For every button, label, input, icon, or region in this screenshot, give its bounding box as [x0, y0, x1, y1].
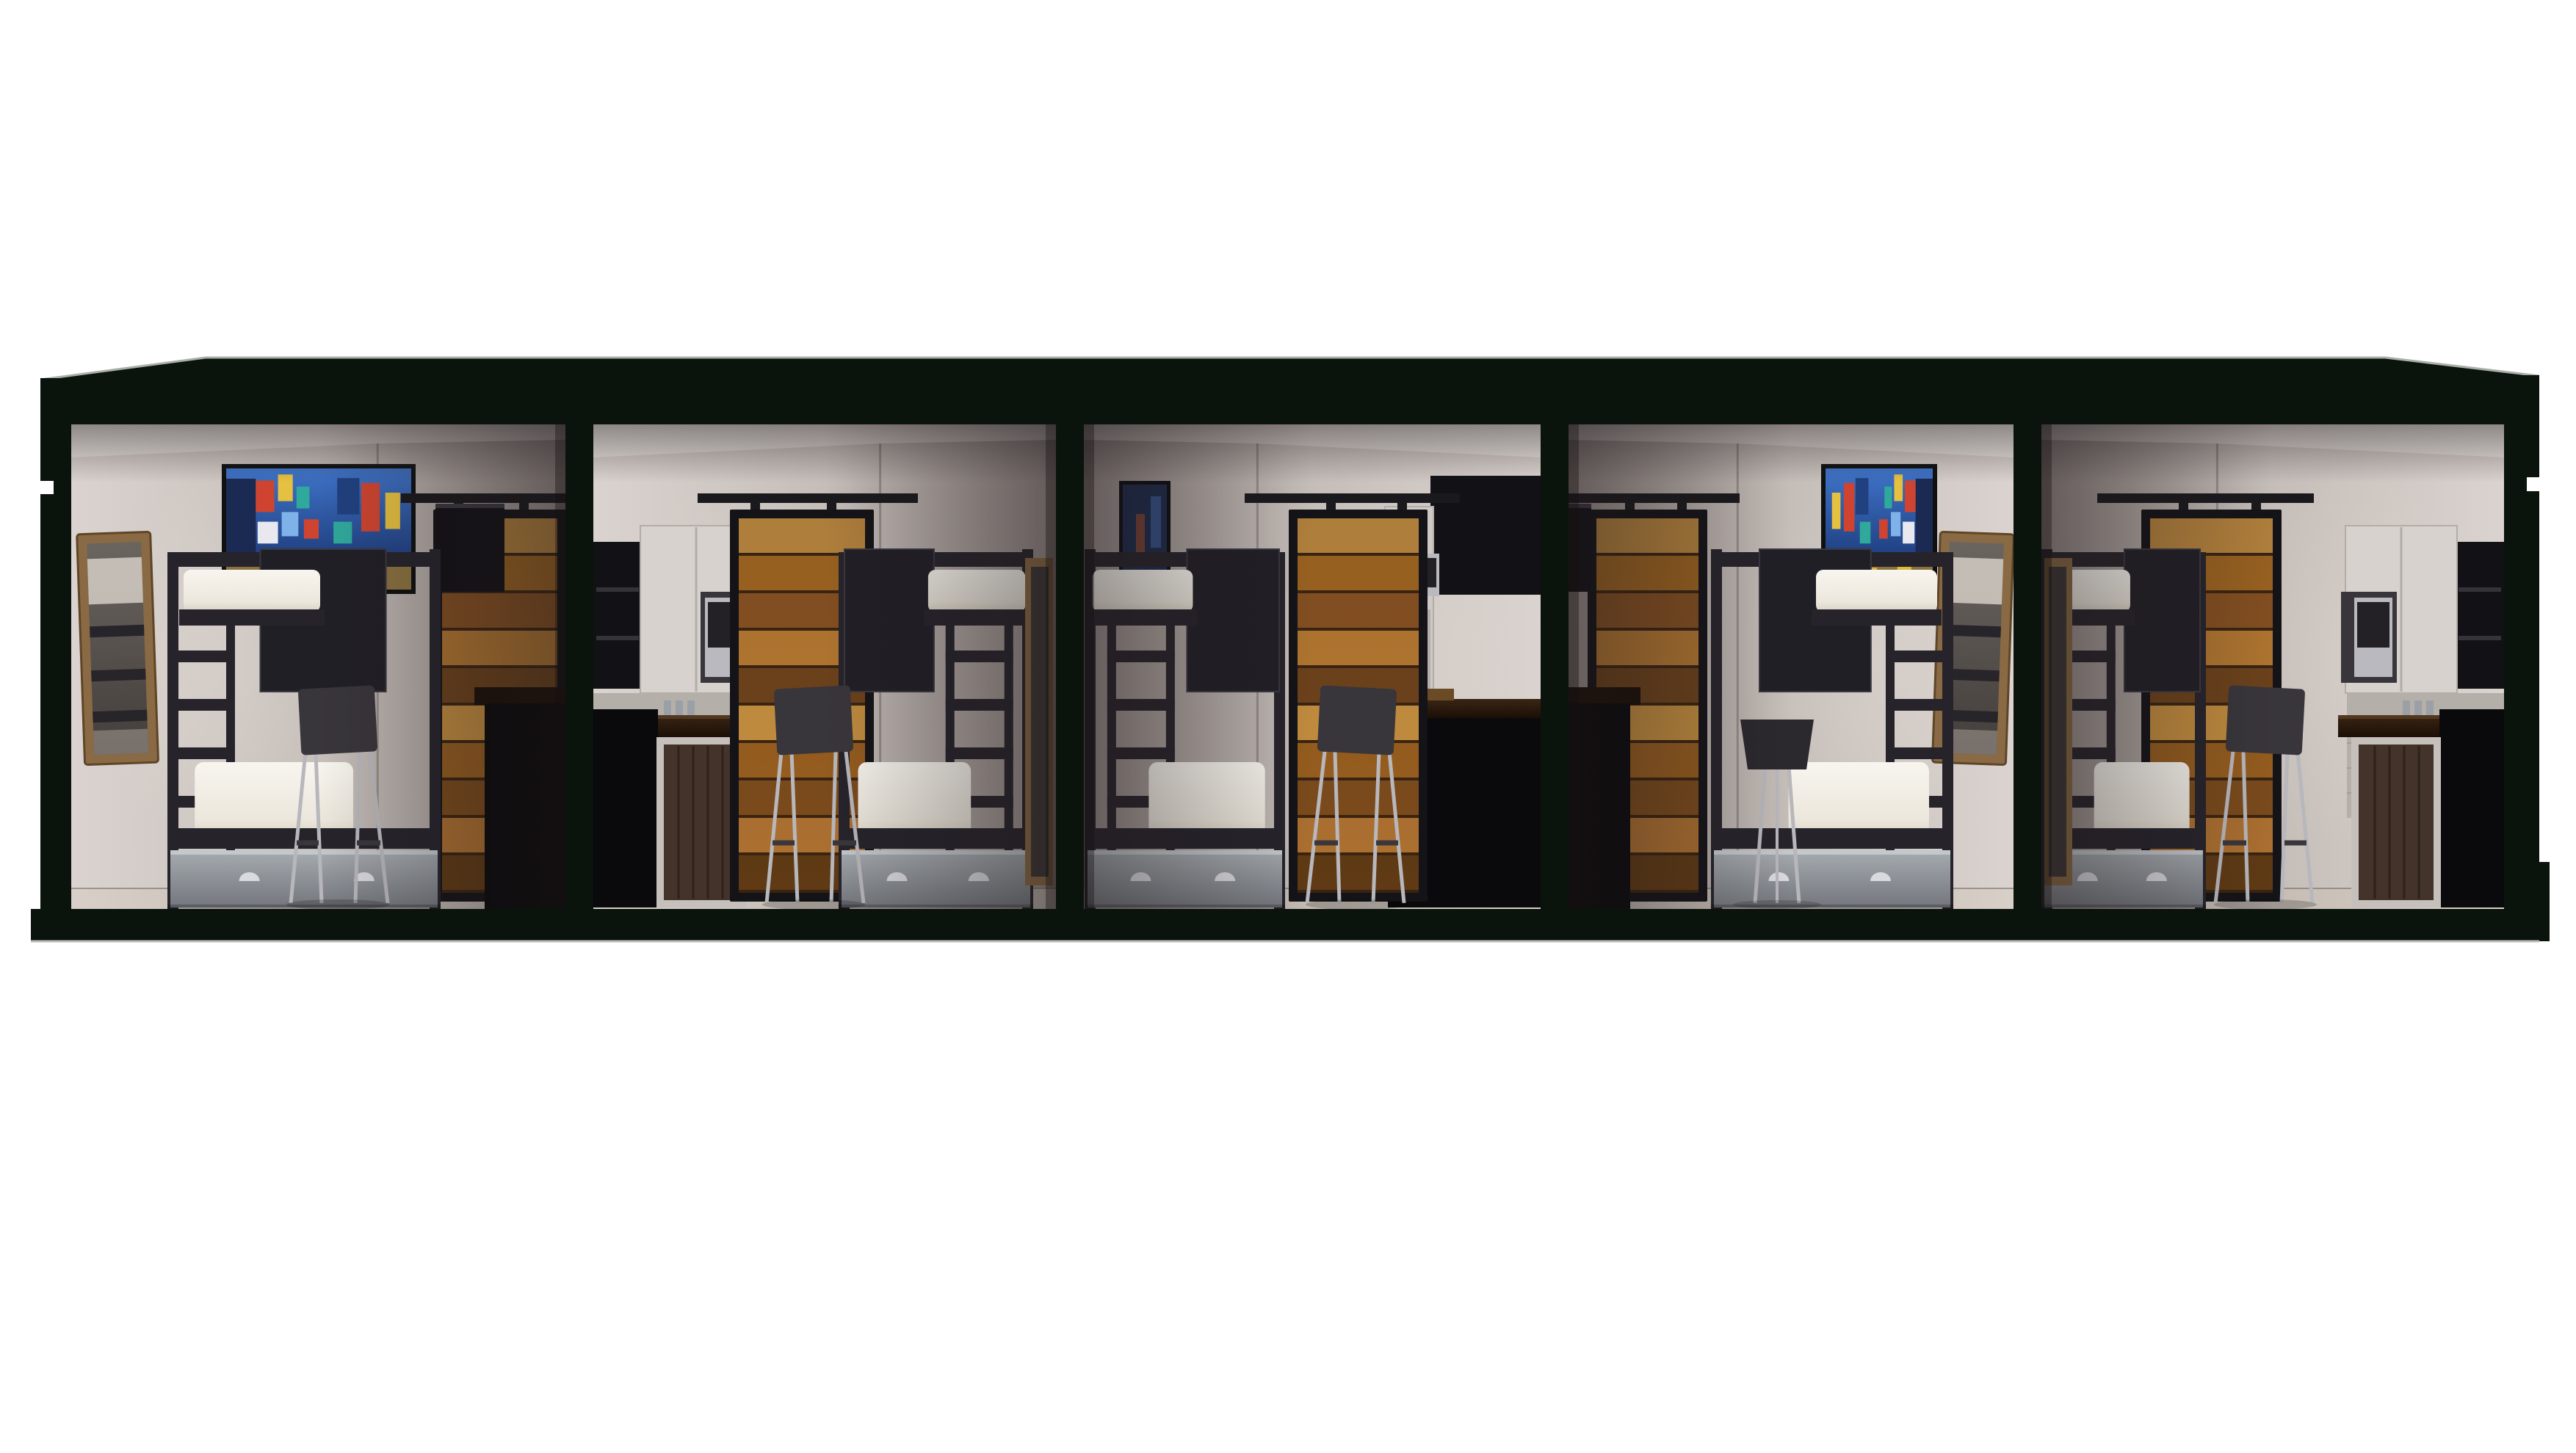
ladder-rung [1886, 747, 1953, 759]
mattress-upper [184, 570, 320, 612]
open-shelf-cabinet [2456, 542, 2504, 689]
counter-bottle [2414, 700, 2422, 715]
base-cabinet-black [593, 709, 658, 907]
unit-5 [2041, 424, 2504, 910]
fridge-front [664, 744, 739, 900]
unit-1-content [71, 424, 610, 910]
container-roof [40, 358, 2539, 424]
fridge-front [2359, 744, 2434, 900]
ladder-rung [167, 651, 235, 662]
right-wall-notch [2527, 477, 2541, 491]
art-billboard [297, 487, 310, 509]
art-billboard [1832, 493, 1841, 529]
divider-1 [565, 418, 593, 915]
counter-bottle [2426, 700, 2434, 715]
side-shade [1569, 424, 1791, 909]
unit-4 [1522, 424, 2014, 910]
ladder-rung [1886, 699, 1953, 711]
stool-seat-back [1317, 685, 1397, 755]
counter-bottle [687, 700, 695, 715]
open-shelf-cabinet [593, 542, 642, 689]
base-cabinet-black [2439, 709, 2504, 907]
container-section-render [0, 0, 2576, 1453]
cabinet-shelf [596, 587, 639, 592]
divider-shadow [1569, 424, 1579, 909]
art-billboard [1879, 519, 1888, 538]
divider-shadow [1084, 424, 1094, 909]
art-billboard [256, 481, 274, 512]
unit-2 [593, 424, 1056, 910]
mirror-reflection [1947, 557, 2003, 605]
side-shade [1084, 424, 1312, 909]
art-billboard [258, 522, 278, 544]
mirror-reflection-bar [91, 669, 145, 682]
counter-bottle [664, 700, 671, 715]
divider-3 [1541, 418, 1569, 915]
divider-4 [2014, 418, 2041, 915]
art-billboard [1884, 487, 1892, 509]
art-billboard [1860, 522, 1871, 544]
counter-bottle [2403, 700, 2410, 715]
section-illustration [0, 0, 2576, 1453]
ladder-rung [167, 699, 235, 711]
bunk-upper-base-rail [1812, 609, 1942, 626]
mirror-reflection-bar [1946, 625, 2000, 638]
unit-3 [1084, 424, 1541, 910]
art-billboard [1891, 512, 1900, 536]
mirror-reflection [93, 729, 148, 756]
art-billboard [304, 519, 319, 538]
cabinet-shelf [2459, 587, 2501, 592]
container-right-wall [2504, 375, 2539, 909]
bunk-upper-base-rail [179, 609, 325, 626]
unit-1 [71, 424, 610, 910]
divider-2 [1056, 418, 1084, 915]
mirror-reflection [87, 557, 143, 605]
ladder-rung [1886, 651, 1953, 662]
unit-2-content [593, 424, 1056, 910]
container-left-wall [40, 378, 71, 909]
container-base-step [2539, 862, 2550, 941]
unit-5-content [2041, 424, 2504, 910]
divider-shadow [2041, 424, 2052, 909]
art-billboard [1905, 481, 1916, 512]
art-billboard [282, 512, 299, 536]
cabinet-shelf [596, 636, 639, 640]
unit-3-content [1084, 424, 1541, 910]
side-shade [825, 424, 1056, 909]
mattress-upper [1816, 570, 1937, 612]
counter-bottle [676, 700, 683, 715]
stool-shadow [1306, 899, 1408, 910]
microwave-window [2357, 602, 2389, 648]
container-base [31, 909, 2539, 941]
mattress-lower [1789, 762, 1929, 838]
art-billboard [1856, 478, 1869, 515]
art-billboard [1844, 483, 1855, 532]
unit-4-content [1522, 424, 2014, 910]
left-wall-notch [38, 481, 54, 494]
mirror-reflection-bar [93, 710, 147, 723]
divider-shadow [1046, 424, 1056, 909]
ladder-rung [167, 747, 235, 759]
side-shade [2041, 424, 2273, 909]
kitchenette [2338, 526, 2504, 907]
full-length-mirror [77, 532, 159, 764]
side-shade [319, 424, 566, 909]
cabinet-shelf [2459, 636, 2501, 640]
art-billboard [1903, 522, 1914, 544]
mirror-reflection-bar [90, 625, 144, 638]
divider-shadow [555, 424, 565, 909]
